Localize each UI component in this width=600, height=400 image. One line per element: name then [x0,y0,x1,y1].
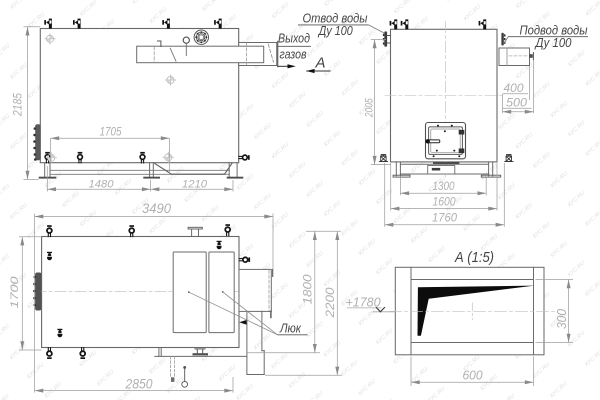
svg-text:2850: 2850 [125,376,153,391]
svg-text:1760: 1760 [432,213,458,225]
svg-text:А (1:5): А (1:5) [454,250,494,266]
svg-text:500: 500 [506,96,527,110]
svg-text:1480: 1480 [89,178,115,190]
svg-text:1705: 1705 [100,124,122,138]
svg-text:Люк: Люк [279,321,302,335]
svg-text:300: 300 [555,309,569,329]
svg-text:600: 600 [463,367,484,382]
svg-text:400: 400 [504,81,524,95]
svg-text:2005: 2005 [363,98,375,118]
svg-text:1600: 1600 [433,197,457,209]
svg-text:1210: 1210 [182,178,208,190]
svg-text:1800: 1800 [301,274,315,304]
svg-text:2185: 2185 [11,93,25,117]
svg-text:Ду 100: Ду 100 [317,24,353,38]
svg-text:А: А [315,55,326,72]
svg-text:2200: 2200 [323,287,337,318]
svg-text:Ду 100: Ду 100 [534,36,572,50]
svg-text:+1780: +1780 [346,294,382,309]
svg-text:3490: 3490 [142,201,171,216]
svg-text:1300: 1300 [433,181,456,193]
svg-text:1700: 1700 [9,275,21,308]
svg-text:газов: газов [280,47,307,62]
svg-text:Выход: Выход [278,31,310,46]
